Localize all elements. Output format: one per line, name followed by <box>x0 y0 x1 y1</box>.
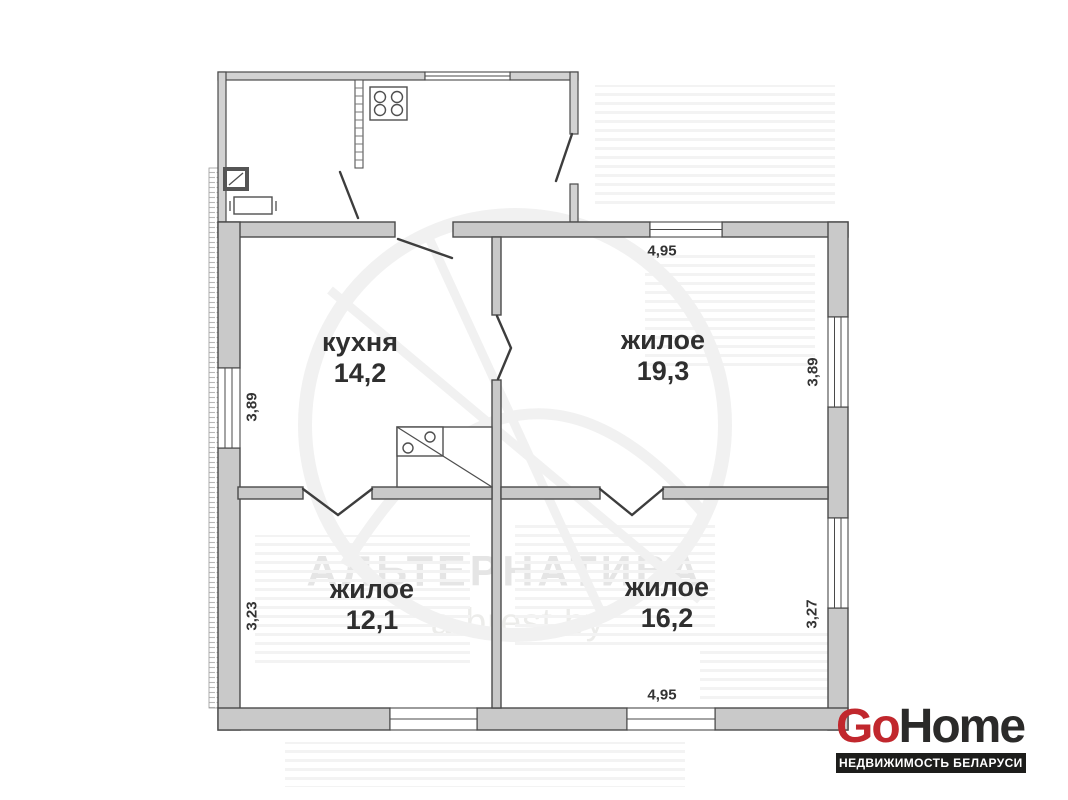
left-wall-upper-segment <box>218 222 240 368</box>
right-wall-upper-segment <box>828 222 848 317</box>
right-wall-mid-segment <box>828 407 848 518</box>
bottom-wall-left-segment <box>218 708 390 730</box>
door-swing-icon-living3 <box>600 489 663 515</box>
stove-burners-icon <box>370 87 407 120</box>
floorplan-page: АЛЬТЕРНАТИВА a-brest.by <box>0 0 1068 800</box>
cross-wall-left-a <box>238 487 303 499</box>
logo-tagline: НЕДВИЖИМОСТЬ БЕЛАРУСИ <box>836 753 1026 773</box>
porch-right-wall-upper <box>570 72 578 134</box>
porch-left-wall <box>218 72 226 222</box>
window-top-living1 <box>650 222 722 237</box>
door-swing-icon-living1 <box>497 316 511 379</box>
porch-entry-door-swing-icon <box>556 134 572 181</box>
cross-wall-right-a <box>501 487 600 499</box>
gohome-logo: GoHome НЕДВИЖИМОСТЬ БЕЛАРУСИ <box>836 703 1026 773</box>
porch-top-wall-left <box>218 72 425 80</box>
partition-door-swing-icon <box>340 172 358 218</box>
top-wall-left-segment <box>218 222 395 237</box>
porch-right-wall-stub <box>570 184 578 222</box>
window-bottom-living3 <box>627 708 715 730</box>
window-right-living1 <box>828 317 848 407</box>
cross-wall-right-b <box>663 487 828 499</box>
bottom-wall-mid-segment <box>477 708 627 730</box>
porch-top-wall-right <box>510 72 578 80</box>
logo-brand-go: Go <box>836 700 899 753</box>
window-left-kitchen <box>218 368 240 448</box>
center-wall-upper-segment <box>492 237 501 315</box>
logo-brand-home: Home <box>899 700 1024 753</box>
flue-icon <box>225 169 247 189</box>
center-wall-lower-segment <box>492 380 501 708</box>
window-bottom-living2 <box>390 708 477 730</box>
bottom-wall-right-segment <box>715 708 848 730</box>
floorplan-drawing <box>0 0 1068 800</box>
texture-streaks <box>255 85 835 787</box>
left-wall-siding-hatch <box>209 168 218 708</box>
gohome-logo-text: GoHome <box>836 703 1026 751</box>
top-wall-mid-segment <box>453 222 650 237</box>
porch-partition-wall <box>355 80 363 168</box>
cross-wall-left-b <box>372 487 492 499</box>
furnace-icon <box>397 427 492 487</box>
bench-icon <box>230 197 276 214</box>
window-right-living3 <box>828 518 848 608</box>
left-wall-lower-segment <box>218 448 240 730</box>
